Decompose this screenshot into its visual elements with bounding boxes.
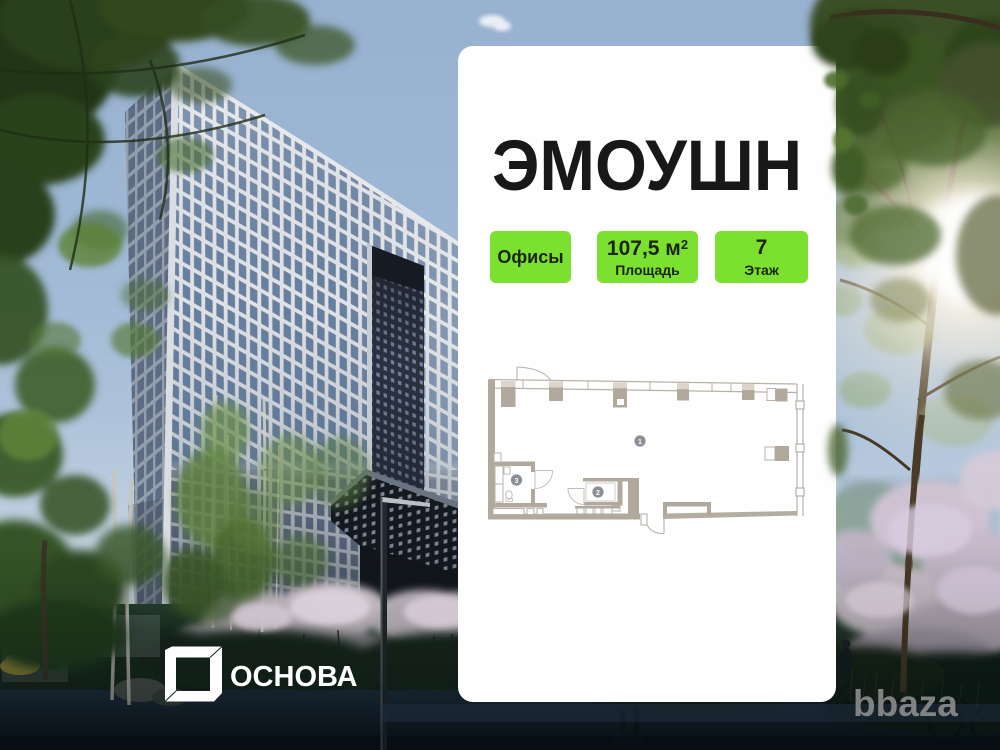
svg-text:3: 3 [515, 478, 519, 485]
svg-text:2: 2 [596, 490, 600, 497]
svg-text:1: 1 [638, 439, 642, 446]
svg-text:bbaza: bbaza [853, 683, 958, 724]
svg-text:ОСНОВА: ОСНОВА [230, 661, 357, 693]
